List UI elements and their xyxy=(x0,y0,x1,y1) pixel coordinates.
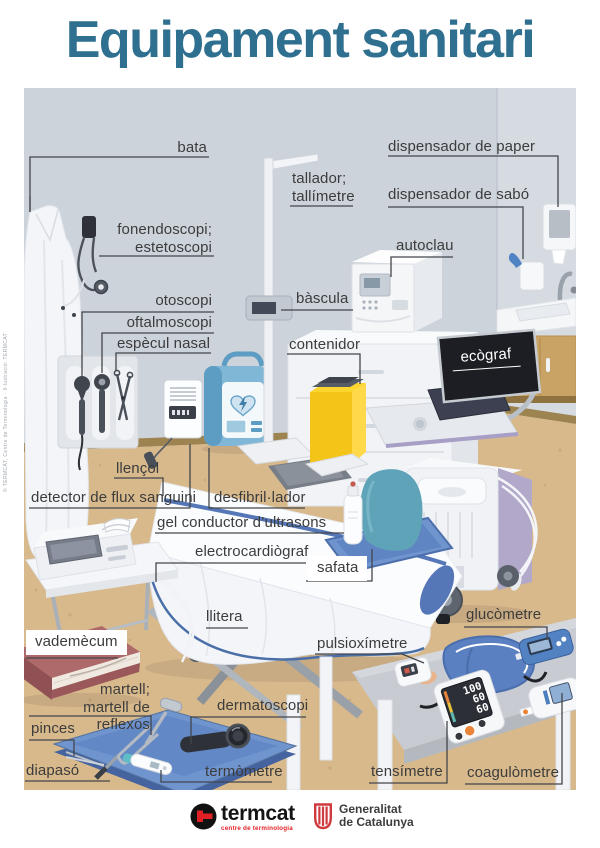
label-safata: safata xyxy=(308,556,367,581)
label-dispensador-paper: dispensador de paper xyxy=(388,138,535,156)
generalitat-logo-icon xyxy=(313,803,333,830)
label-oftalmoscopi: oftalmoscopi xyxy=(98,314,212,332)
label-bascula: bàscula xyxy=(296,290,348,308)
generalitat-line2: de Catalunya xyxy=(339,816,414,829)
label-llencol: llençol xyxy=(116,460,159,478)
label-gel-ultrasons: gel conductor d’ultrasons xyxy=(157,514,326,532)
waste-container-illustration xyxy=(306,377,368,476)
label-electrocardiograf: electrocardiògraf xyxy=(195,543,308,561)
label-diapaso: diapasó xyxy=(26,762,79,780)
termcat-subtitle: centre de terminologia xyxy=(221,825,295,832)
label-detector-flux: detector de flux sanguini xyxy=(31,489,196,507)
defibrillator-illustration xyxy=(202,354,270,454)
label-llitera: llitera xyxy=(206,608,243,626)
termcat-wordmark: termcat xyxy=(221,803,295,824)
termcat-logo: termcat centre de terminologia xyxy=(190,803,295,832)
label-vademecum: vademècum xyxy=(26,630,127,655)
label-tensimetre: tensímetre xyxy=(371,763,443,781)
gel-bottle-icon xyxy=(344,494,362,544)
label-dermatoscopi: dermatoscopi xyxy=(217,697,308,715)
label-dispensador-sabo: dispensador de sabó xyxy=(388,186,529,204)
label-contenidor: contenidor xyxy=(289,336,360,354)
label-autoclau: autoclau xyxy=(396,237,454,255)
label-pulsioximetre: pulsioxímetre xyxy=(317,635,408,653)
label-glucometre: glucòmetre xyxy=(466,606,541,624)
footer: termcat centre de terminologia Generalit… xyxy=(0,800,600,844)
label-otoscopi: otoscopi xyxy=(122,292,212,310)
label-fonendoscopi: fonendoscopi; estetoscopi xyxy=(82,221,212,256)
credit-vertical: © TERMCAT, Centre de Terminologia · Il·l… xyxy=(3,333,9,492)
label-desfibrillador: desfibril·lador xyxy=(214,489,306,507)
label-pinces: pinces xyxy=(31,720,75,738)
label-termometre: termòmetre xyxy=(205,763,283,781)
autoclave-illustration xyxy=(352,250,442,332)
generalitat-logo: Generalitat de Catalunya xyxy=(313,803,414,830)
label-coagulometre: coagulòmetre xyxy=(467,764,559,782)
poster: Equipament sanitari xyxy=(0,0,600,848)
label-especul-nasal: espècul nasal xyxy=(95,335,210,353)
termcat-logo-icon xyxy=(190,803,217,830)
gel-cover xyxy=(360,469,422,551)
generalitat-line1: Generalitat xyxy=(339,803,414,816)
label-tallador: tallador; tallímetre xyxy=(292,170,355,205)
label-bata: bata xyxy=(117,139,207,157)
